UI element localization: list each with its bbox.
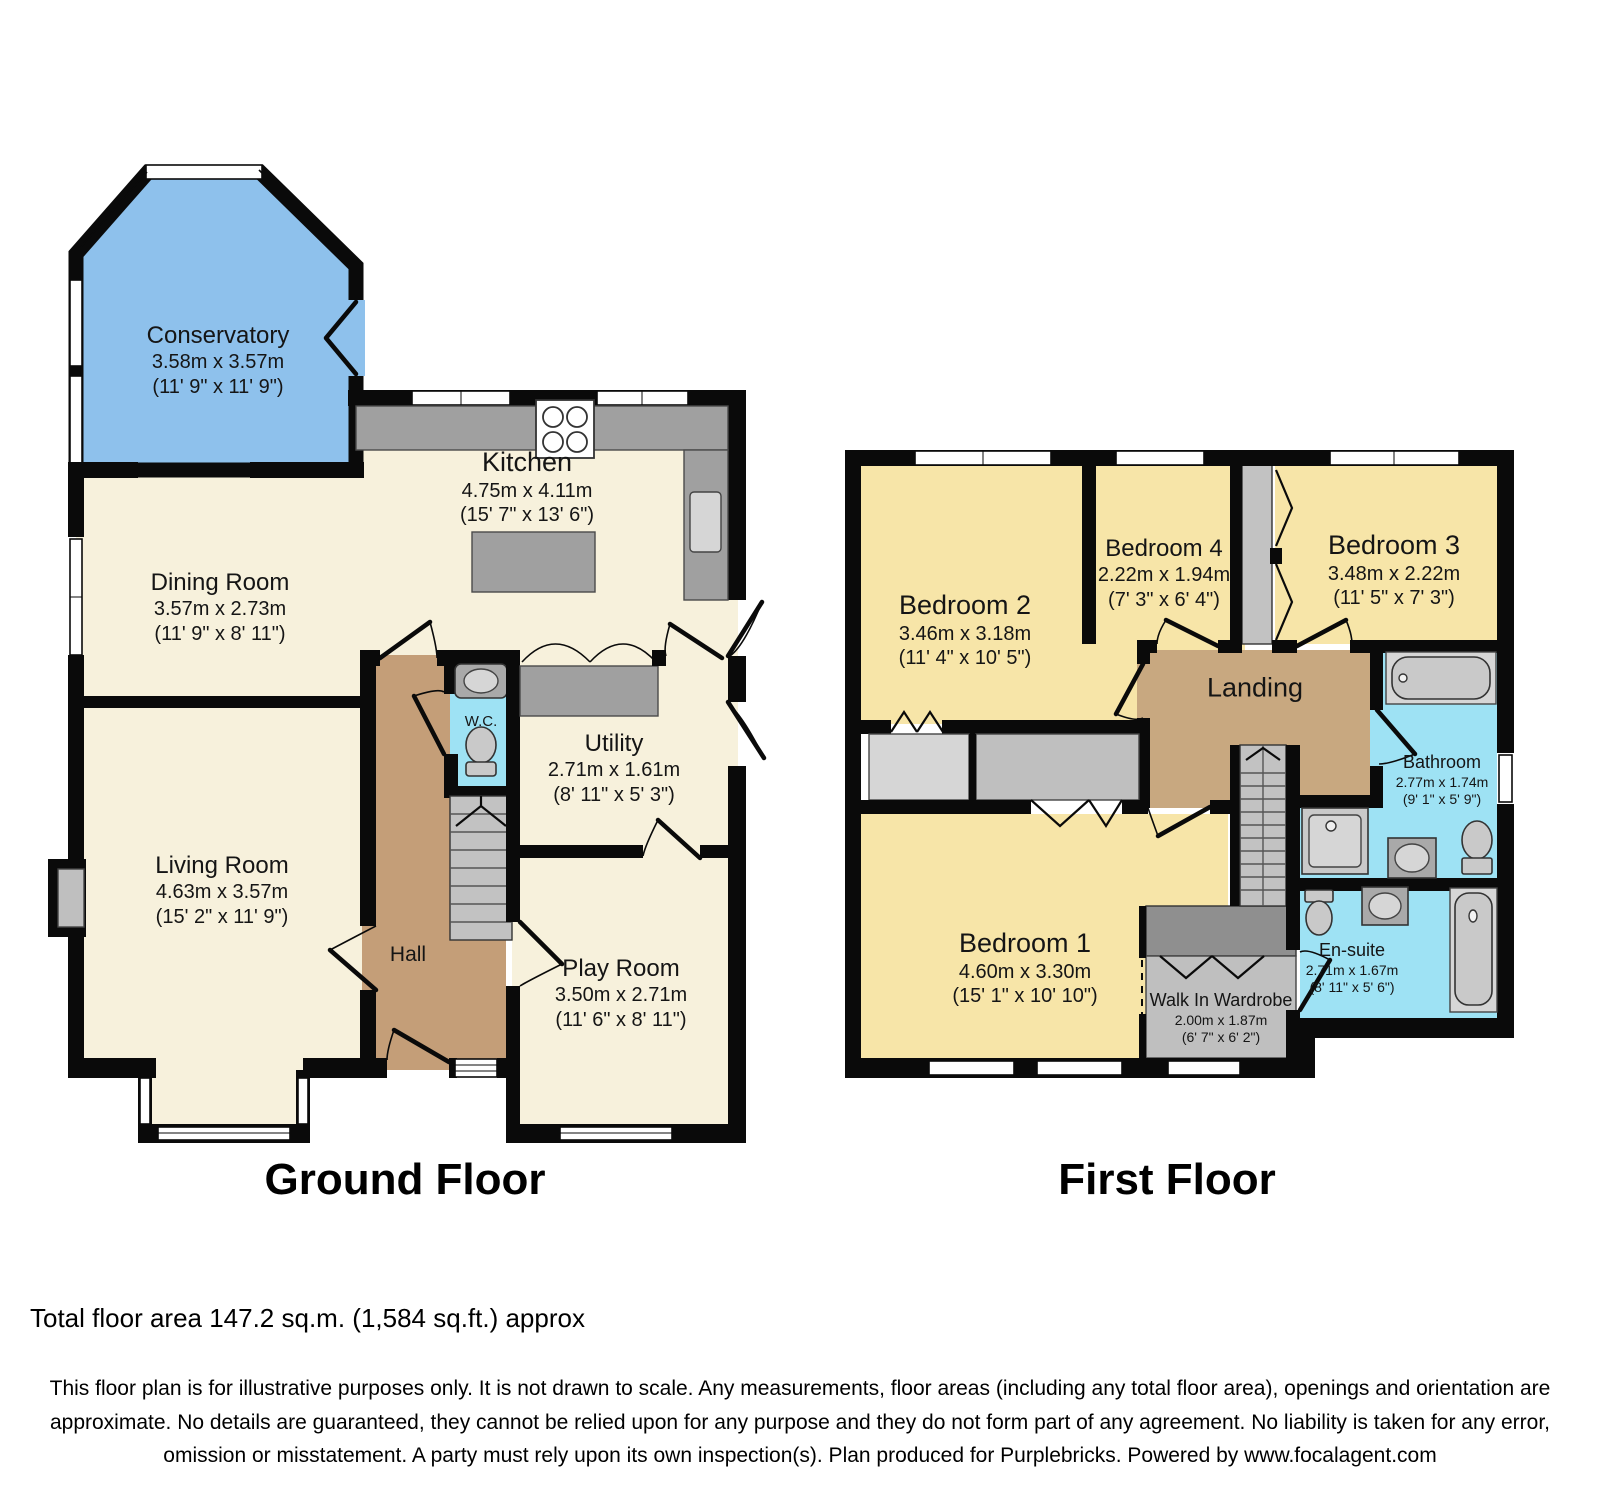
bedroom2-wardrobe — [869, 734, 969, 800]
floorplan-drawing — [0, 0, 1600, 1501]
bedroom4-window — [1116, 451, 1204, 465]
first-floor-title: First Floor — [1058, 1155, 1276, 1205]
room-label-hall: Hall — [390, 942, 426, 968]
bedroom1-window-1 — [929, 1061, 1014, 1075]
bathroom-window — [1499, 755, 1512, 802]
conservatory-left-window — [70, 280, 82, 366]
room-label-walk-in-wardrobe: Walk In Wardrobe 2.00m x 1.87m (6' 7" x … — [1150, 990, 1293, 1046]
bedroom1-wardrobe — [976, 734, 1139, 800]
room-label-utility: Utility 2.71m x 1.61m (8' 11" x 5' 3") — [548, 729, 680, 807]
room-label-dining-room: Dining Room 3.57m x 2.73m (11' 9" x 8' 1… — [151, 568, 290, 646]
utility-counter — [520, 666, 658, 716]
room-label-bedroom1: Bedroom 1 4.60m x 3.30m (15' 1" x 10' 10… — [952, 927, 1097, 1009]
total-floor-area: Total floor area 147.2 sq.m. (1,584 sq.f… — [30, 1303, 585, 1334]
living-bay-window-right — [298, 1078, 308, 1124]
kitchen-island — [472, 532, 595, 592]
room-label-bedroom3: Bedroom 3 3.48m x 2.22m (11' 5" x 7' 3") — [1328, 529, 1460, 611]
room-label-bathroom: Bathroom 2.77m x 1.74m (9' 1" x 5' 9") — [1396, 752, 1489, 808]
wardrobe-top-band — [1146, 906, 1296, 956]
room-label-landing: Landing — [1207, 672, 1303, 705]
room-label-conservatory: Conservatory 3.58m x 3.57m (11' 9" x 11'… — [147, 321, 290, 399]
room-label-living-room: Living Room 4.63m x 3.57m (15' 2" x 11' … — [155, 851, 288, 929]
room-label-kitchen: Kitchen 4.75m x 4.11m (15' 7" x 13' 6") — [460, 446, 594, 528]
fridge-icon — [690, 492, 721, 552]
ground-floor-title: Ground Floor — [264, 1155, 545, 1205]
wc-toilet-icon — [466, 727, 496, 763]
bedroom1-window-2 — [1037, 1061, 1122, 1075]
living-bay-window-left — [140, 1078, 150, 1124]
room-label-bedroom4: Bedroom 4 2.22m x 1.94m (7' 3" x 6' 4") — [1098, 534, 1230, 612]
room-label-bedroom2: Bedroom 2 3.46m x 3.18m (11' 4" x 10' 5"… — [899, 589, 1032, 671]
front-door-step — [455, 1059, 497, 1077]
left-outer-wall — [68, 470, 84, 537]
floorplan-page: Conservatory 3.58m x 3.57m (11' 9" x 11'… — [0, 0, 1600, 1501]
disclaimer-text: This floor plan is for illustrative purp… — [35, 1372, 1565, 1473]
stair-void — [1242, 464, 1272, 644]
conservatory-top-window — [146, 165, 262, 179]
room-label-wc: W.C. — [465, 713, 498, 731]
wardrobe-window — [1168, 1061, 1240, 1075]
bathroom-toilet-icon — [1462, 821, 1492, 859]
room-label-ensuite: En-suite 2.71m x 1.67m (8' 11" x 5' 6") — [1306, 940, 1399, 996]
room-label-play-room: Play Room 3.50m x 2.71m (11' 6" x 8' 11"… — [555, 954, 687, 1032]
